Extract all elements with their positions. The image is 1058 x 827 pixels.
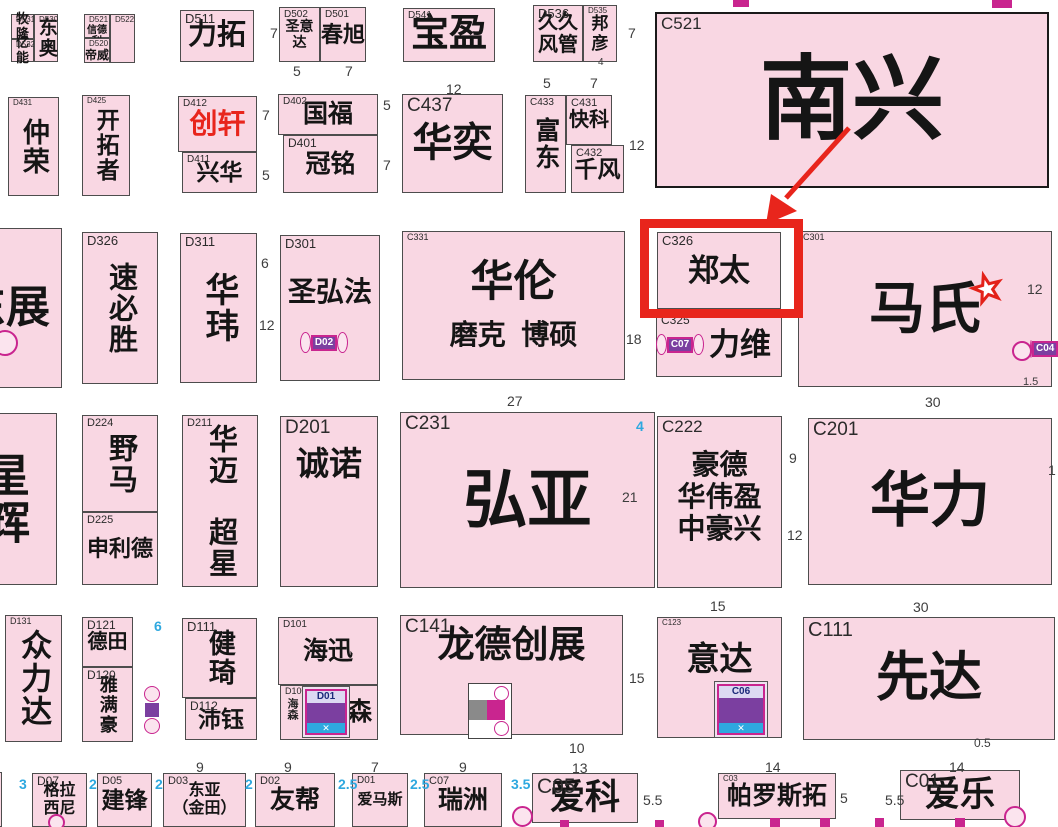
dimension-label: 7 <box>371 760 379 774</box>
booth-name: 申利德 <box>87 536 153 561</box>
gray-block <box>469 700 487 720</box>
booth-name: 建锋 <box>102 787 148 813</box>
elevator-label: D01 <box>307 691 345 703</box>
booth-C03[interactable]: C03帕罗斯拓 <box>718 773 836 819</box>
booth-code: D425 <box>87 97 106 106</box>
column-icon <box>141 686 163 734</box>
decor-square-icon <box>770 818 780 827</box>
booth-name: 力维 <box>709 327 771 362</box>
booth-code: C431 <box>571 97 597 109</box>
dimension-label: 9 <box>459 760 467 774</box>
dimension-label: 9 <box>284 760 292 774</box>
booth-D522[interactable]: D522 <box>110 14 135 63</box>
booth-D311[interactable]: D311华玮 <box>180 233 257 383</box>
booth-name: 帝威 <box>85 49 109 63</box>
decor-circle-icon <box>1012 341 1032 361</box>
decor-topbar-icon <box>992 0 1012 8</box>
column-block <box>145 703 159 717</box>
booth-code: D412 <box>183 98 207 109</box>
booth-name: 华奕 <box>413 121 493 167</box>
dimension-label: 9 <box>789 451 797 465</box>
dimension-label: 5.5 <box>885 793 904 807</box>
booth-code: C521 <box>661 15 702 34</box>
dimension-label: 12 <box>1027 282 1043 296</box>
booth-name: 华迈 超星 <box>203 424 236 579</box>
booth-C301[interactable]: C301马氏 <box>798 231 1052 387</box>
dimension-label: 12 <box>259 318 275 332</box>
booth-code: C432 <box>576 147 602 159</box>
booth-partial-23[interactable]: 东展 <box>0 228 62 388</box>
dimension-label: 13 <box>572 761 588 775</box>
booth-name: 南兴 <box>760 48 944 153</box>
circle-glyph <box>656 334 667 355</box>
booth-name: 德田 <box>88 631 128 654</box>
elevator-icon-D01: D01✕ <box>302 686 350 738</box>
booth-name: 创轩 <box>189 108 245 140</box>
booth-code: D05 <box>102 775 122 787</box>
booth-name: 国福 <box>303 100 353 129</box>
booth-D111[interactable]: D111健琦 <box>182 618 257 698</box>
booth-code: D530 <box>39 16 58 25</box>
dimension-label: 7 <box>590 76 598 90</box>
elevator-shaft: C06✕ <box>717 684 765 735</box>
booth-code: D211 <box>187 417 212 429</box>
booth-name: 华力 <box>870 467 990 535</box>
booth-partial-49[interactable] <box>0 772 2 827</box>
dimension-label: 7 <box>262 108 270 122</box>
booth-C433[interactable]: C433富东 <box>525 95 566 193</box>
booth-code: D535 <box>588 7 607 16</box>
booth-name: 瑞洲 <box>438 786 488 815</box>
decor-circle-icon <box>48 814 65 827</box>
booth-D01[interactable]: D01爱马斯 <box>352 773 408 827</box>
booth-name: 快科 <box>569 109 609 132</box>
dimension-label: 2.5 <box>410 777 429 791</box>
dimension-label: 15 <box>629 671 645 685</box>
dimension-label: 7 <box>383 158 391 172</box>
booth-D326[interactable]: D326速必胜 <box>82 232 158 384</box>
dimension-label: 4 <box>636 419 644 433</box>
booth-D224[interactable]: D224野马 <box>82 415 158 512</box>
dimension-label: 27 <box>507 394 523 408</box>
booth-name: 健琦 <box>204 629 235 687</box>
booth-code: C437 <box>407 96 452 117</box>
decor-square-icon <box>875 818 884 827</box>
booth-code: D112 <box>190 700 218 713</box>
booth-name: 意达 <box>687 640 753 678</box>
booth-name: 豪德 华伟盈 中豪兴 <box>677 449 761 545</box>
booth-name: 春旭 <box>321 22 365 47</box>
booth-D131[interactable]: D131众力达 <box>5 615 62 742</box>
booth-C431[interactable]: C431快科 <box>566 95 612 145</box>
booth-D225[interactable]: D225申利德 <box>82 512 158 585</box>
circle-glyph <box>144 686 160 702</box>
booth-D536[interactable]: D536久久 风管 <box>533 5 583 62</box>
booth-code: C231 <box>405 414 450 435</box>
decor-square-icon <box>560 820 569 827</box>
booth-name: 东亚 （金田） <box>172 782 236 818</box>
dimension-label: 12 <box>629 138 645 152</box>
elevator-label: D02 <box>311 335 337 351</box>
booth-code: D301 <box>285 237 316 251</box>
dimension-label: 6 <box>154 619 162 633</box>
booth-name: 速必胜 <box>103 262 136 355</box>
booth-code: D201 <box>285 418 330 439</box>
elevator-label: C06 <box>719 686 763 698</box>
booth-D511[interactable]: D511力拓 <box>180 10 254 62</box>
booth-D402[interactable]: D402国福 <box>278 94 378 135</box>
booth-code: D07 <box>37 775 59 788</box>
elevator-icon-D02: D02 <box>300 329 348 356</box>
circle-glyph <box>494 721 509 736</box>
booth-code: C326 <box>662 234 693 248</box>
booth-name: 野马 <box>103 433 136 495</box>
booth-code: D501 <box>325 9 349 20</box>
booth-D101[interactable]: D101海迅 <box>278 617 378 685</box>
booth-code: C123 <box>662 619 681 628</box>
booth-C05[interactable]: C05爱科 <box>532 773 638 823</box>
dimension-label: 3.5 <box>511 777 530 791</box>
booth-code: C201 <box>813 420 858 441</box>
booth-name: 雅满豪 <box>97 675 118 735</box>
booth-D401[interactable]: D401冠铭 <box>283 135 378 193</box>
booth-code: C433 <box>530 97 554 108</box>
booth-D530[interactable]: D530东奥 <box>34 14 58 62</box>
booth-name: 开拓者 <box>93 108 119 183</box>
booth-code: D121 <box>87 619 116 632</box>
booth-D520[interactable]: D520帝威 <box>84 38 110 63</box>
dimension-label: 1 <box>1048 463 1056 477</box>
booth-name: 先达 <box>876 648 982 708</box>
dimension-label: 14 <box>765 760 781 774</box>
booth-name: 马氏 <box>869 277 981 341</box>
decor-square-icon <box>820 818 830 827</box>
booth-D425[interactable]: D425开拓者 <box>82 95 130 196</box>
booth-code: C141 <box>405 617 450 638</box>
circle-glyph <box>494 686 509 701</box>
booth-name: 富东 <box>531 117 560 171</box>
dimension-label: 30 <box>913 600 929 614</box>
booth-code: D01 <box>357 775 375 786</box>
booth-D431[interactable]: D431仲荣 <box>8 97 59 196</box>
decor-circle-icon <box>512 806 533 827</box>
dimension-label: 7 <box>345 64 353 78</box>
booth-name: 龙德创展 <box>438 624 586 666</box>
elevator-cross: ✕ <box>719 723 763 733</box>
booth-code: D326 <box>87 234 118 248</box>
floorplan-canvas: D531牧隆D532亿能D530东奥D521信德利D520帝威D522D511力… <box>0 0 1058 827</box>
dimension-label: 21 <box>622 490 638 504</box>
booth-code: C222 <box>662 418 703 437</box>
decor-circle-icon <box>698 812 717 827</box>
booth-code: D224 <box>87 417 113 429</box>
booth-name: 帕罗斯拓 <box>727 782 827 811</box>
booth-D201[interactable]: D201诚诺 <box>280 416 378 587</box>
booth-code: D120 <box>87 669 116 682</box>
booth-D501[interactable]: D501春旭 <box>320 7 366 62</box>
dimension-label: 3 <box>19 777 27 791</box>
elevator-cross: ✕ <box>307 723 345 733</box>
booth-D532[interactable]: D532亿能 <box>11 39 34 62</box>
booth-name: 海迅 <box>303 637 353 666</box>
booth-code: D02 <box>260 775 280 787</box>
booth-code: C07 <box>429 775 449 787</box>
booth-code: D532 <box>16 41 35 50</box>
dimension-label: 2 <box>155 777 163 791</box>
booth-code: D225 <box>87 514 113 526</box>
booth-code: D03 <box>168 775 188 787</box>
dimension-label: 12 <box>446 82 462 96</box>
booth-C201[interactable]: C201华力 <box>808 418 1052 585</box>
dimension-label: 5.5 <box>643 793 662 807</box>
dimension-label: 18 <box>626 332 642 346</box>
booth-code: D520 <box>89 40 108 49</box>
booth-name: 邦 彦 <box>592 14 609 53</box>
decor-square-icon <box>955 818 965 827</box>
dimension-label: 2 <box>89 777 97 791</box>
booth-code: C111 <box>808 619 853 641</box>
dimension-label: 0.5 <box>974 737 991 749</box>
dimension-label: 12 <box>787 528 803 542</box>
booth-code: C331 <box>407 233 429 243</box>
booth-name: 众力达 <box>16 629 51 728</box>
circle-glyph <box>300 332 311 353</box>
booth-code: D311 <box>185 235 215 249</box>
elevator-car <box>307 703 345 723</box>
dimension-label: 2 <box>245 777 253 791</box>
booth-D02[interactable]: D02友帮 <box>255 773 335 827</box>
small-vertical-text: 海森 <box>284 698 300 720</box>
booth-C231[interactable]: C231弘亚 <box>400 412 655 588</box>
elevator-label: C04 <box>1032 341 1058 357</box>
booth-code: D521 <box>89 16 108 25</box>
elevator-icon-C04: C04 <box>1030 337 1058 361</box>
dimension-label: 14 <box>949 760 965 774</box>
booth-code: D402 <box>283 96 307 107</box>
decor-square-icon <box>655 820 664 827</box>
booth-code: D101 <box>283 619 307 630</box>
booth-code: D541 <box>408 10 432 21</box>
elevator-shaft: D01✕ <box>305 689 347 735</box>
booth-name: 千风 <box>575 156 621 182</box>
circle-glyph <box>144 718 160 734</box>
booth-D535[interactable]: D535邦 彦 <box>583 5 617 62</box>
booth-code: C301 <box>803 233 825 243</box>
booth-code: D531 <box>16 16 35 25</box>
booth-name: 友帮 <box>270 786 320 815</box>
dimension-label: 5 <box>543 76 551 90</box>
booth-D03[interactable]: D03东亚 （金田） <box>163 773 246 827</box>
dimension-label: 15 <box>710 599 726 613</box>
booth-name: 东展 <box>0 283 50 333</box>
dimension-label: 5 <box>383 98 391 112</box>
booth-C222[interactable]: C222豪德 华伟盈 中豪兴 <box>657 416 782 588</box>
dimension-label: 30 <box>925 395 941 409</box>
booth-D211[interactable]: D211华迈 超星 <box>182 415 258 587</box>
booth-code: D522 <box>115 16 134 25</box>
booth-C437[interactable]: C437华奕 <box>402 94 503 193</box>
booth-code: D502 <box>284 9 308 20</box>
booth-C331[interactable]: C331华伦磨克 博硕 <box>402 231 625 380</box>
elevator-icon-C07: C07 <box>656 331 704 358</box>
magenta-block <box>487 700 505 720</box>
dimension-label: 4 <box>598 58 604 68</box>
booth-name: 仲荣 <box>18 118 49 176</box>
elevator-icon-C06: C06✕ <box>714 681 768 738</box>
booth-D121[interactable]: D121德田 <box>82 617 133 667</box>
booth-D112[interactable]: D112沛钰 <box>185 698 257 740</box>
booth-subname: 磨克 博硕 <box>450 313 578 353</box>
dimension-label: 1.5 <box>1023 377 1038 388</box>
booth-code: D401 <box>288 137 317 150</box>
booth-C01[interactable]: C01爱乐 <box>900 770 1020 820</box>
dimension-label: 2.5 <box>338 777 357 791</box>
booth-name: 冠铭 <box>305 150 355 179</box>
booth-code: C01 <box>905 772 940 793</box>
booth-code: D131 <box>10 617 32 627</box>
booth-D521[interactable]: D521信德利 <box>84 14 110 38</box>
booth-code: C325 <box>661 314 690 327</box>
dimension-label: 5 <box>293 64 301 78</box>
booth-C432[interactable]: C432千风 <box>571 145 624 193</box>
booth-C326[interactable]: C326郑太 <box>657 232 781 309</box>
dimension-label: 7 <box>628 26 636 40</box>
booth-name: 弘亚 <box>464 464 592 537</box>
booth-D412[interactable]: D412创轩 <box>178 96 257 152</box>
booth-D541[interactable]: D541宝盈 <box>403 8 495 62</box>
dimension-label: 10 <box>569 741 585 755</box>
booth-code: D431 <box>13 99 32 108</box>
booth-name: 华玮 <box>199 272 238 344</box>
booth-name: 圣意达 <box>280 19 319 51</box>
dimension-label: 5 <box>262 168 270 182</box>
booth-code: D536 <box>538 7 569 21</box>
booth-D120[interactable]: D120雅满豪 <box>82 667 133 742</box>
booth-D05[interactable]: D05建锋 <box>97 773 152 827</box>
booth-code: D411 <box>187 154 210 165</box>
booth-D411[interactable]: D411兴华 <box>182 152 257 193</box>
booth-code: D111 <box>187 620 216 634</box>
booth-D502[interactable]: D502圣意达 <box>279 7 320 62</box>
elevator-car <box>719 698 763 723</box>
booth-C111[interactable]: C111先达 <box>803 617 1055 740</box>
booth-name: 星辉 <box>0 452 29 546</box>
booth-name: 诚诺 <box>296 445 362 483</box>
booth-name: 华伦 <box>471 258 557 307</box>
booth-D301[interactable]: D301圣弘法 <box>280 235 380 381</box>
elevator-label: C07 <box>667 337 693 353</box>
booth-C521[interactable]: C521南兴 <box>655 12 1049 188</box>
dimension-label: 6 <box>261 256 269 270</box>
decor-circle-icon <box>1004 806 1026 827</box>
booth-C07[interactable]: C07瑞洲 <box>424 773 502 827</box>
booth-partial-31[interactable]: 星辉 <box>0 413 57 585</box>
machine-icon <box>468 683 512 739</box>
booth-name: 圣弘法 <box>288 276 372 308</box>
dimension-label: 9 <box>196 760 204 774</box>
booth-code: C03 <box>723 775 738 784</box>
booth-name: 爱马斯 <box>357 791 402 808</box>
booth-code: D511 <box>185 12 215 26</box>
booth-code: C05 <box>537 775 576 798</box>
dimension-label: 7 <box>270 26 278 40</box>
decor-topbar-icon <box>733 0 749 7</box>
dimension-label: 5 <box>840 791 848 805</box>
circle-glyph <box>337 332 348 353</box>
circle-glyph <box>693 334 704 355</box>
booth-name: 郑太 <box>688 253 750 288</box>
